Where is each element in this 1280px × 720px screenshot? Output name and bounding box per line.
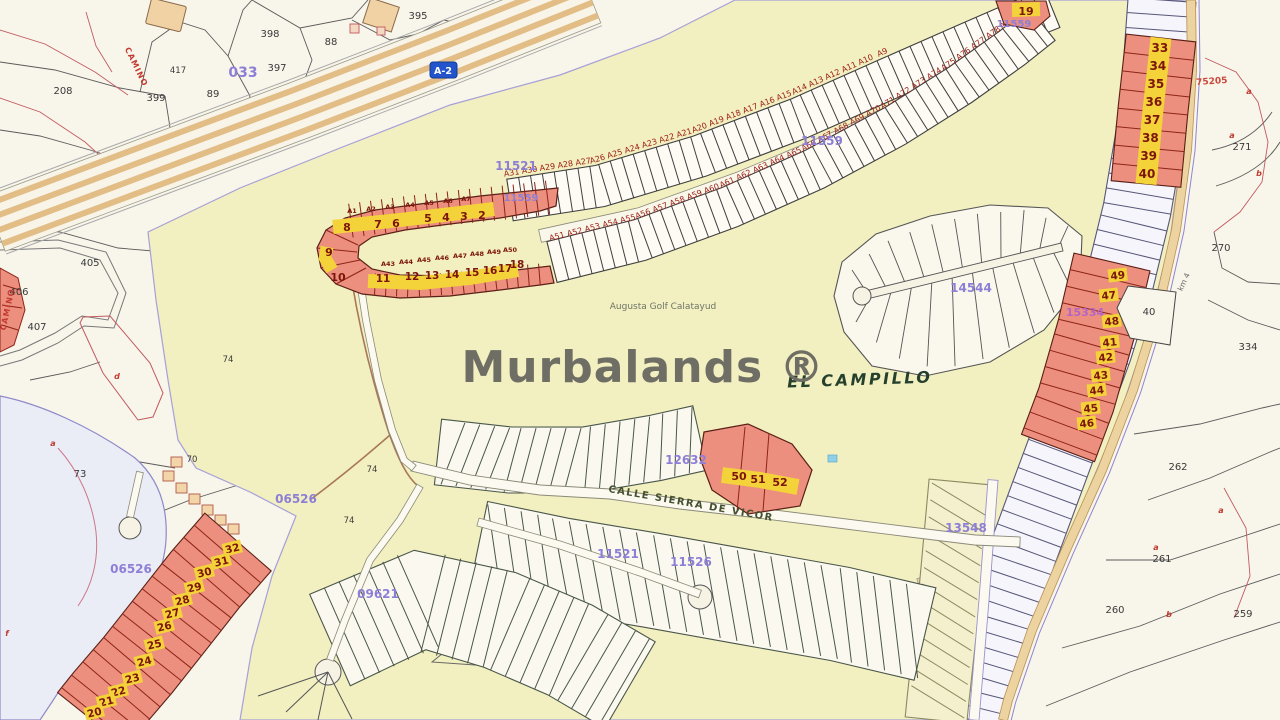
subparcel-letter: a bbox=[50, 439, 55, 448]
parcel-number: 398 bbox=[260, 29, 279, 40]
parcel-number: 417 bbox=[170, 66, 186, 76]
highlighted-plot-number: 41 bbox=[1102, 336, 1118, 349]
highlighted-plot-number: 34 bbox=[1150, 59, 1167, 73]
highlighted-plot-number: A47 bbox=[453, 252, 467, 260]
highlighted-plot-number: 19 bbox=[1018, 5, 1033, 18]
zone-code: 11521 bbox=[597, 547, 639, 561]
highlighted-plot-number: A46 bbox=[435, 254, 450, 262]
highlighted-plot-number: 9 bbox=[325, 246, 333, 259]
parcel-number: 261 bbox=[1152, 554, 1171, 565]
highlighted-plot-number: 16 bbox=[483, 265, 498, 277]
highlighted-plot-number: A3 bbox=[385, 203, 395, 211]
parcel-number: 399 bbox=[146, 93, 165, 104]
parcel-number: 40 bbox=[1143, 307, 1156, 318]
subparcel-letter: b bbox=[1166, 610, 1172, 619]
zone-code: 12632 bbox=[665, 453, 707, 467]
highlighted-plot-number: A7 bbox=[461, 195, 471, 203]
highlighted-plot-number: A6 bbox=[443, 197, 453, 205]
highlighted-plot-number: A1 bbox=[347, 207, 357, 215]
highlighted-plot-number: 46 bbox=[1079, 417, 1095, 430]
zone-code: 15334 bbox=[1066, 306, 1105, 319]
highlighted-plot-number: 10 bbox=[330, 271, 346, 284]
highlighted-plot-number: 43 bbox=[1093, 369, 1109, 382]
zone-code: 06526 bbox=[275, 492, 317, 506]
highlighted-plot-number: A2 bbox=[366, 205, 376, 213]
highlighted-plot-number: A44 bbox=[399, 258, 414, 266]
highlighted-plot-number: A4 bbox=[405, 201, 415, 209]
parcel-number: 334 bbox=[1238, 342, 1257, 353]
highlighted-plot-number: 13 bbox=[425, 270, 440, 282]
parcel-number: 397 bbox=[267, 63, 286, 74]
highlighted-plot-number: 18 bbox=[510, 259, 525, 271]
zone-code: 11559 bbox=[801, 134, 843, 148]
highlighted-plot-number: 38 bbox=[1142, 131, 1159, 145]
subparcel-letter: d bbox=[114, 372, 120, 381]
parcel-number: 405 bbox=[80, 258, 99, 269]
highlighted-plot-number: 51 bbox=[750, 473, 765, 486]
highlighted-plot-number: 52 bbox=[772, 476, 787, 489]
highlighted-plot-number: 15 bbox=[465, 267, 480, 279]
highlighted-plot-number: 12 bbox=[405, 271, 420, 283]
zone-code: 06526 bbox=[110, 562, 152, 576]
highlighted-plot-number: 11 bbox=[376, 273, 391, 285]
highlighted-plot-number: 48 bbox=[1104, 315, 1120, 328]
parcel-number: 70 bbox=[187, 455, 198, 465]
highlighted-plot-number: 50 bbox=[731, 470, 747, 483]
highlighted-plot-number: 40 bbox=[1139, 167, 1156, 181]
pool bbox=[828, 455, 837, 462]
parcel-number: 74 bbox=[223, 355, 234, 365]
highlighted-plot-number: 36 bbox=[1146, 95, 1163, 109]
subparcel-letter: b bbox=[1256, 169, 1262, 178]
building-small bbox=[377, 27, 385, 35]
zone-code: 033 bbox=[228, 65, 257, 81]
highlighted-plot-number: 44 bbox=[1089, 384, 1105, 397]
highlighted-plot-number: 4 bbox=[442, 211, 450, 224]
parcel-number: 262 bbox=[1168, 462, 1187, 473]
parcel-number: 73 bbox=[74, 469, 87, 480]
highlighted-plot-number: 49 bbox=[1110, 269, 1126, 282]
highlighted-plot-number: 6 bbox=[392, 217, 400, 230]
parcel-number: 270 bbox=[1211, 243, 1230, 254]
highlighted-plot-number: 42 bbox=[1098, 351, 1114, 364]
highlighted-plot-number: 47 bbox=[1101, 289, 1117, 302]
highlighted-plot-number: A49 bbox=[487, 248, 502, 256]
highlighted-plot-number: 14 bbox=[445, 269, 460, 281]
subparcel-letter: a bbox=[1229, 131, 1234, 140]
subparcel-letter: a bbox=[1218, 506, 1223, 515]
parcel-number: 74 bbox=[367, 465, 378, 475]
parcel-number: 260 bbox=[1105, 605, 1124, 616]
highway-sign: A-2 bbox=[430, 62, 457, 78]
highlighted-plot-number: A50 bbox=[503, 246, 518, 254]
highlighted-plot-number: 37 bbox=[1144, 113, 1161, 127]
highlighted-plot-number: 33 bbox=[1152, 41, 1169, 55]
parcel-number: 271 bbox=[1232, 142, 1251, 153]
building-small bbox=[350, 24, 359, 33]
highlighted-plot-number: A5 bbox=[424, 199, 434, 207]
parcel-number: 74 bbox=[344, 516, 355, 526]
parcel-number: 208 bbox=[53, 86, 72, 97]
zone-code: 09621 bbox=[357, 587, 399, 601]
watermark: Murbalands ® bbox=[461, 342, 824, 393]
highlighted-plot-number: 35 bbox=[1148, 77, 1165, 91]
zone-code: 13548 bbox=[945, 521, 987, 535]
highlighted-plot-number: 39 bbox=[1140, 149, 1157, 163]
parcel-number: 89 bbox=[207, 89, 220, 100]
highlighted-plot-number: 2 bbox=[478, 209, 486, 222]
golf-course-name: Augusta Golf Calatayud bbox=[610, 302, 716, 312]
parcel-number: 407 bbox=[27, 322, 46, 333]
highlighted-plot-number: 8 bbox=[343, 221, 351, 234]
highlighted-plot-number: 5 bbox=[424, 212, 432, 225]
highlighted-plot-number: A45 bbox=[417, 256, 432, 264]
cadastral-map: A31A30A29A28A27A26A25A24A23A22A21A20A19A… bbox=[0, 0, 1280, 720]
highlighted-plot-number: 7 bbox=[374, 218, 382, 231]
zone-code: 11521 bbox=[495, 159, 537, 173]
cul-de-sac bbox=[119, 517, 141, 539]
zone-code: 11526 bbox=[670, 555, 712, 569]
subparcel-letter: a bbox=[1153, 543, 1158, 552]
map-canvas: A31A30A29A28A27A26A25A24A23A22A21A20A19A… bbox=[0, 0, 1280, 720]
highlighted-plot-number: A48 bbox=[470, 250, 485, 258]
zone-code: 14544 bbox=[950, 281, 992, 295]
highlighted-plot-number: 45 bbox=[1083, 402, 1099, 415]
cul-de-sac bbox=[853, 287, 871, 305]
highlighted-plot-number: A43 bbox=[381, 260, 395, 268]
highlighted-plot-number: 3 bbox=[460, 210, 468, 223]
zone-code: 11559 bbox=[504, 193, 539, 204]
highway-sign-label: A-2 bbox=[434, 66, 452, 77]
parcel-number: 88 bbox=[325, 37, 338, 48]
subparcel-letter: a bbox=[1246, 87, 1251, 96]
zone-code: 11559 bbox=[997, 19, 1032, 30]
parcel-number: 259 bbox=[1233, 609, 1252, 620]
parcel-number: 395 bbox=[408, 11, 427, 22]
